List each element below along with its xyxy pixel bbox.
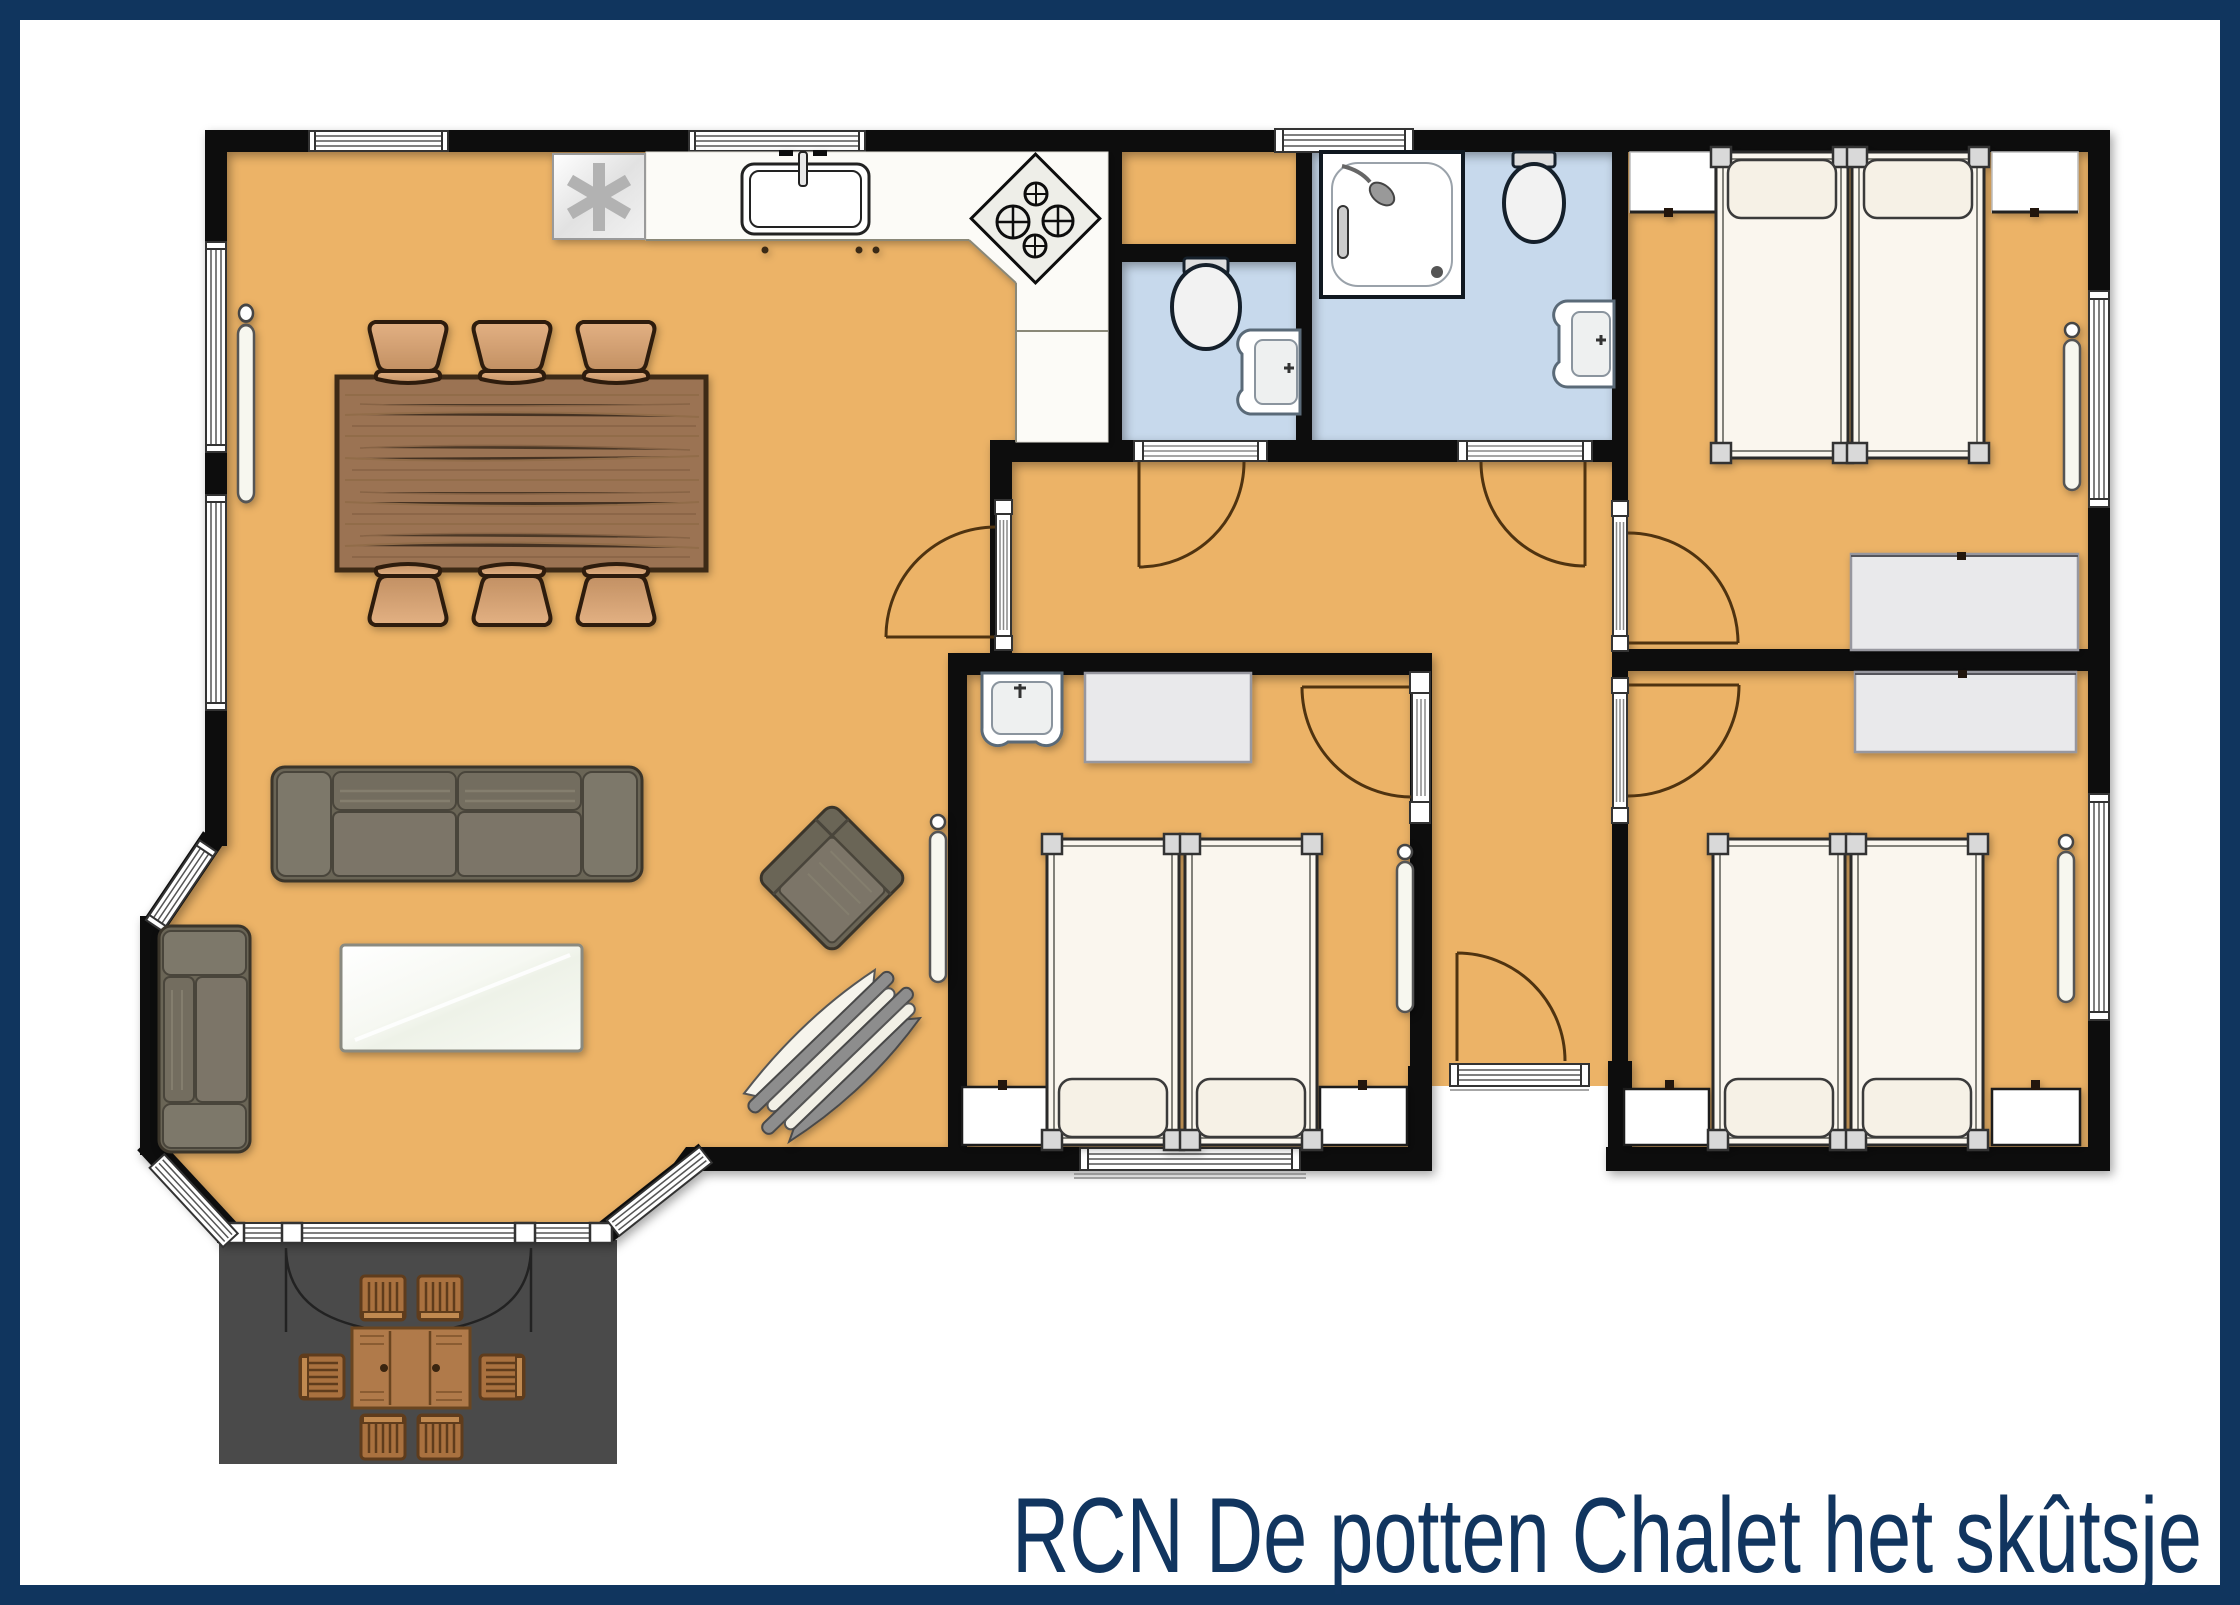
svg-text:RCN De potten Chalet het skûts: RCN De potten Chalet het skûtsje xyxy=(1012,1475,2202,1595)
